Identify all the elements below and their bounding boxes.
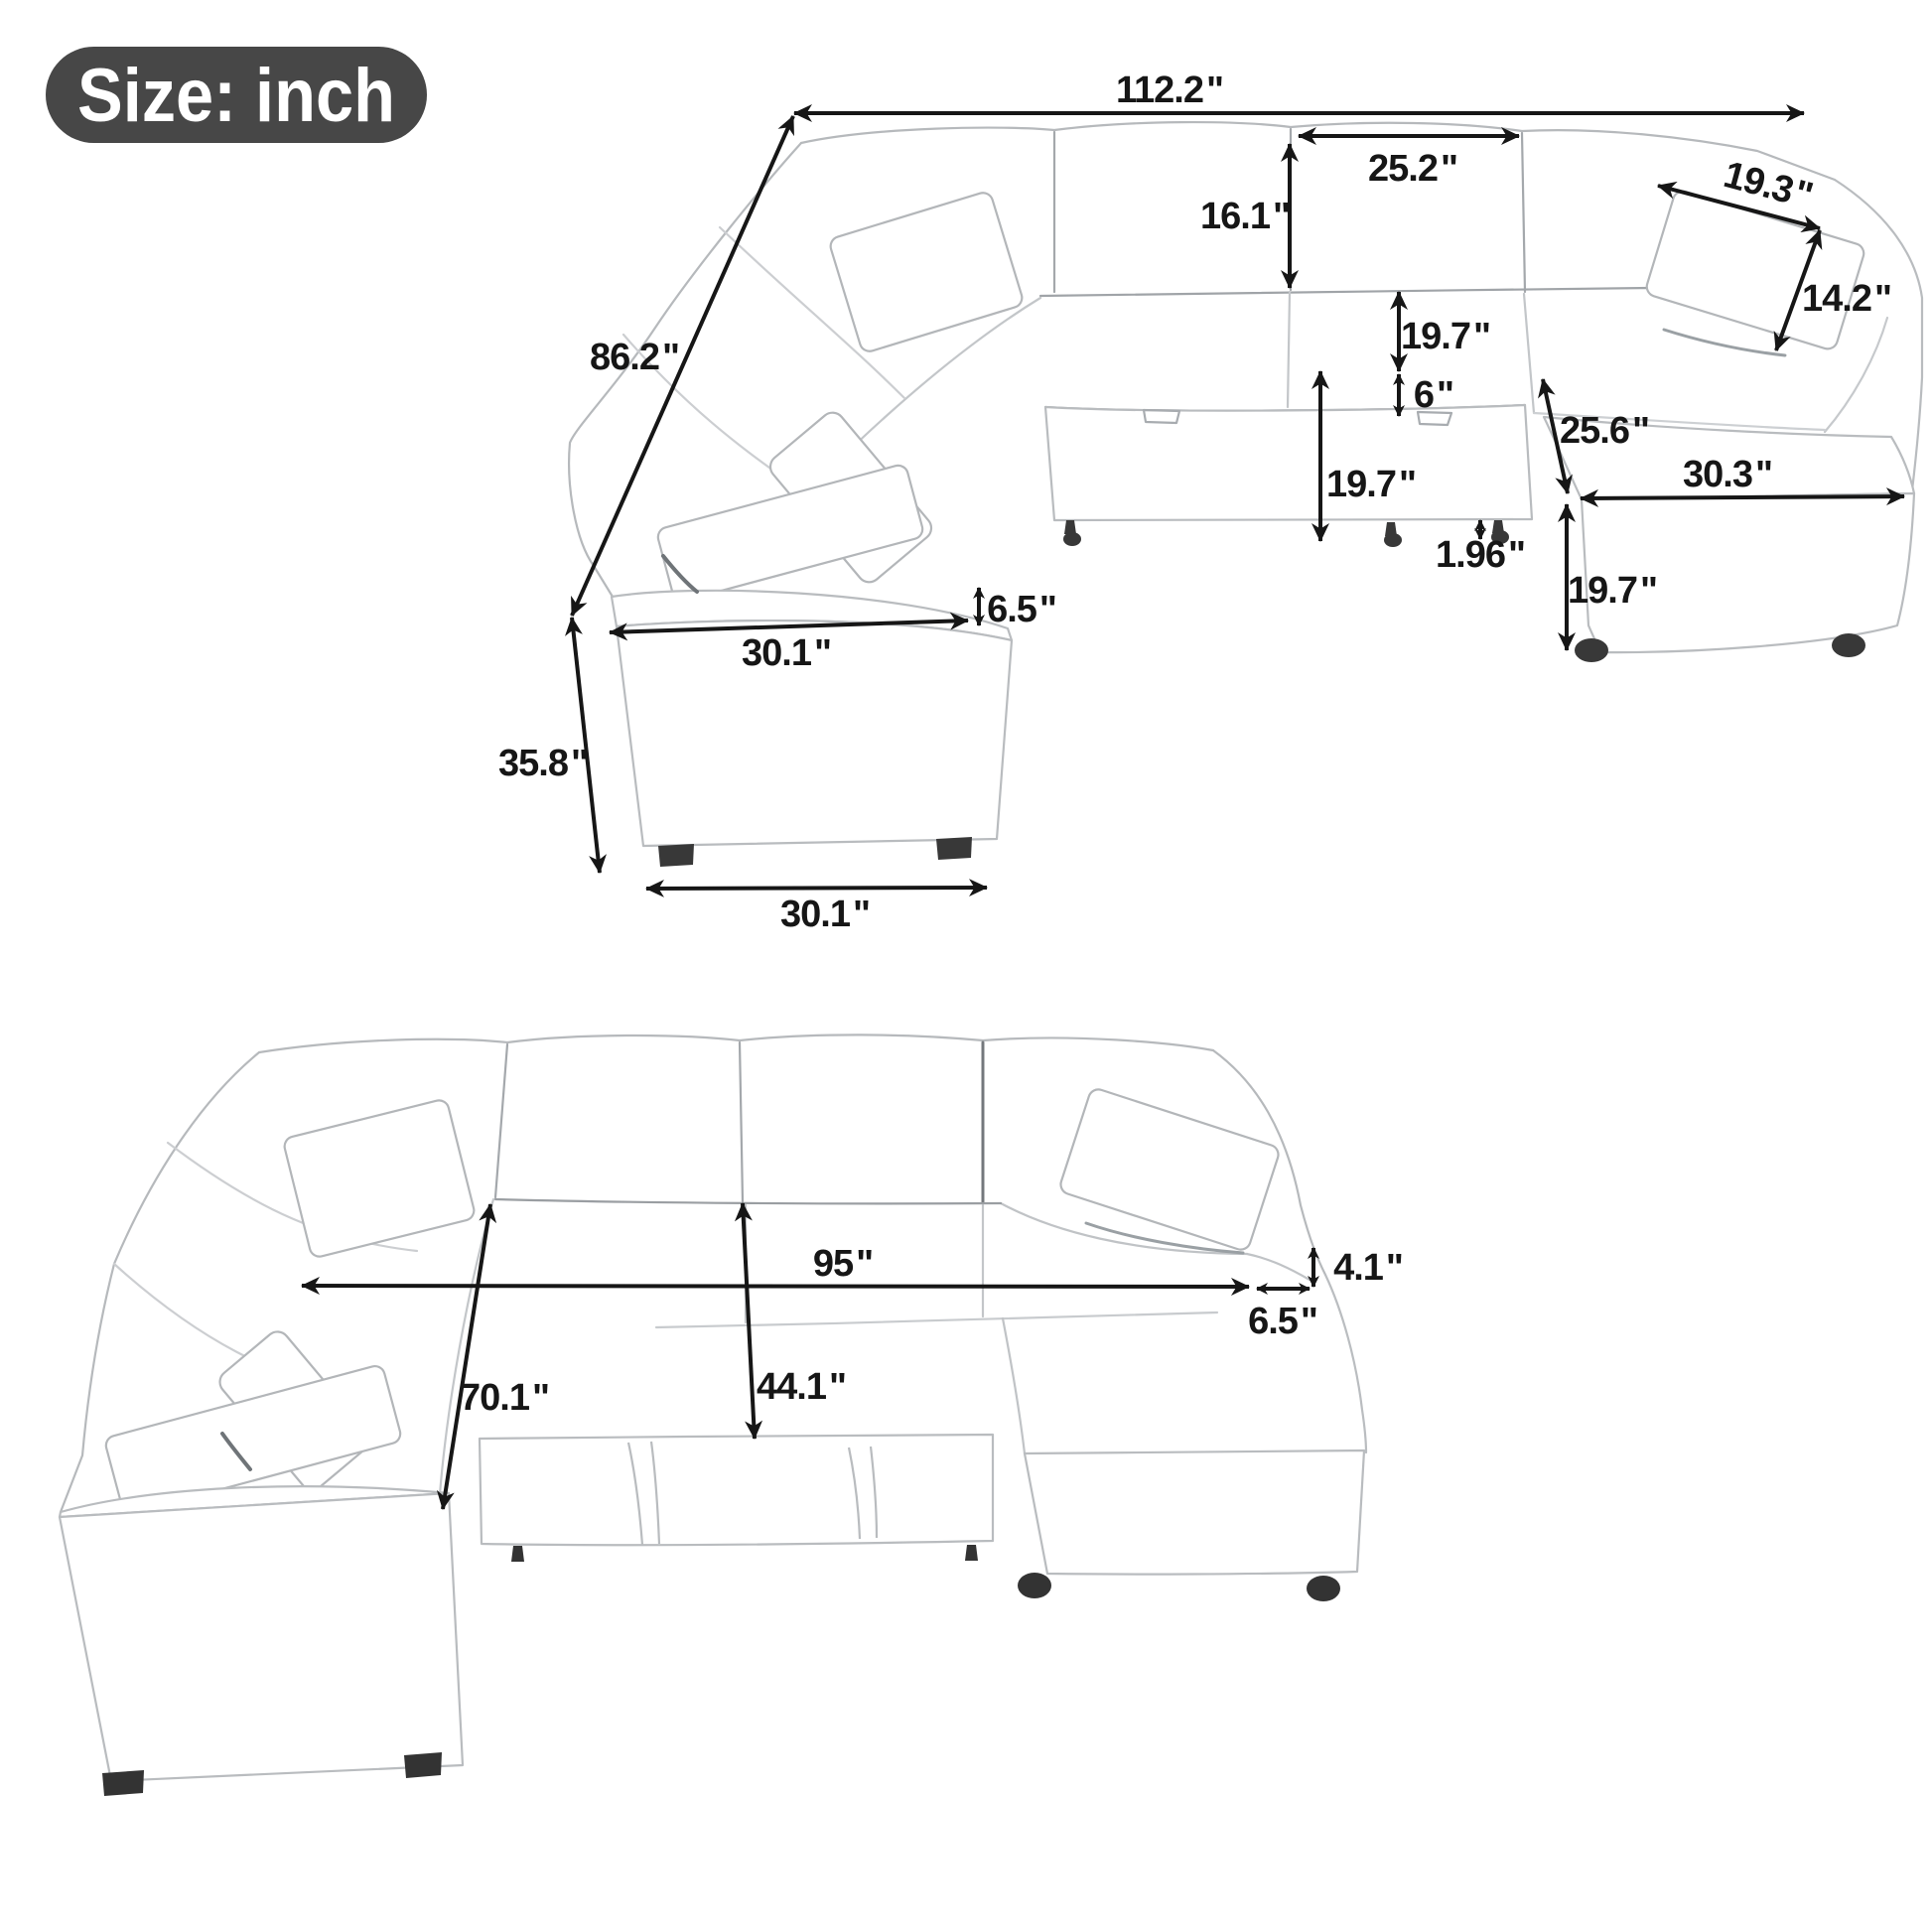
- svg-text:16.1": 16.1": [1200, 196, 1290, 237]
- svg-text:112.2": 112.2": [1116, 69, 1223, 111]
- svg-text:30.3": 30.3": [1683, 454, 1772, 495]
- svg-text:14.2": 14.2": [1802, 278, 1891, 320]
- svg-text:35.8": 35.8": [498, 743, 588, 784]
- svg-text:30.1": 30.1": [780, 894, 870, 935]
- svg-text:25.2": 25.2": [1368, 148, 1457, 190]
- svg-text:25.6": 25.6": [1560, 410, 1649, 452]
- svg-text:4.1": 4.1": [1333, 1247, 1403, 1289]
- svg-text:19.7": 19.7": [1326, 464, 1416, 505]
- svg-text:30.1": 30.1": [742, 632, 831, 674]
- svg-text:86.2": 86.2": [590, 337, 679, 378]
- svg-text:19.7": 19.7": [1568, 570, 1657, 612]
- svg-text:1.96": 1.96": [1436, 534, 1525, 576]
- svg-text:Size: inch: Size: inch: [77, 54, 395, 138]
- svg-text:44.1": 44.1": [757, 1366, 846, 1408]
- svg-text:6": 6": [1414, 374, 1453, 416]
- svg-text:19.7": 19.7": [1401, 316, 1490, 357]
- svg-text:70.1": 70.1": [460, 1377, 549, 1419]
- svg-text:6.5": 6.5": [1248, 1301, 1317, 1342]
- svg-text:95": 95": [813, 1243, 873, 1285]
- svg-text:6.5": 6.5": [987, 589, 1056, 630]
